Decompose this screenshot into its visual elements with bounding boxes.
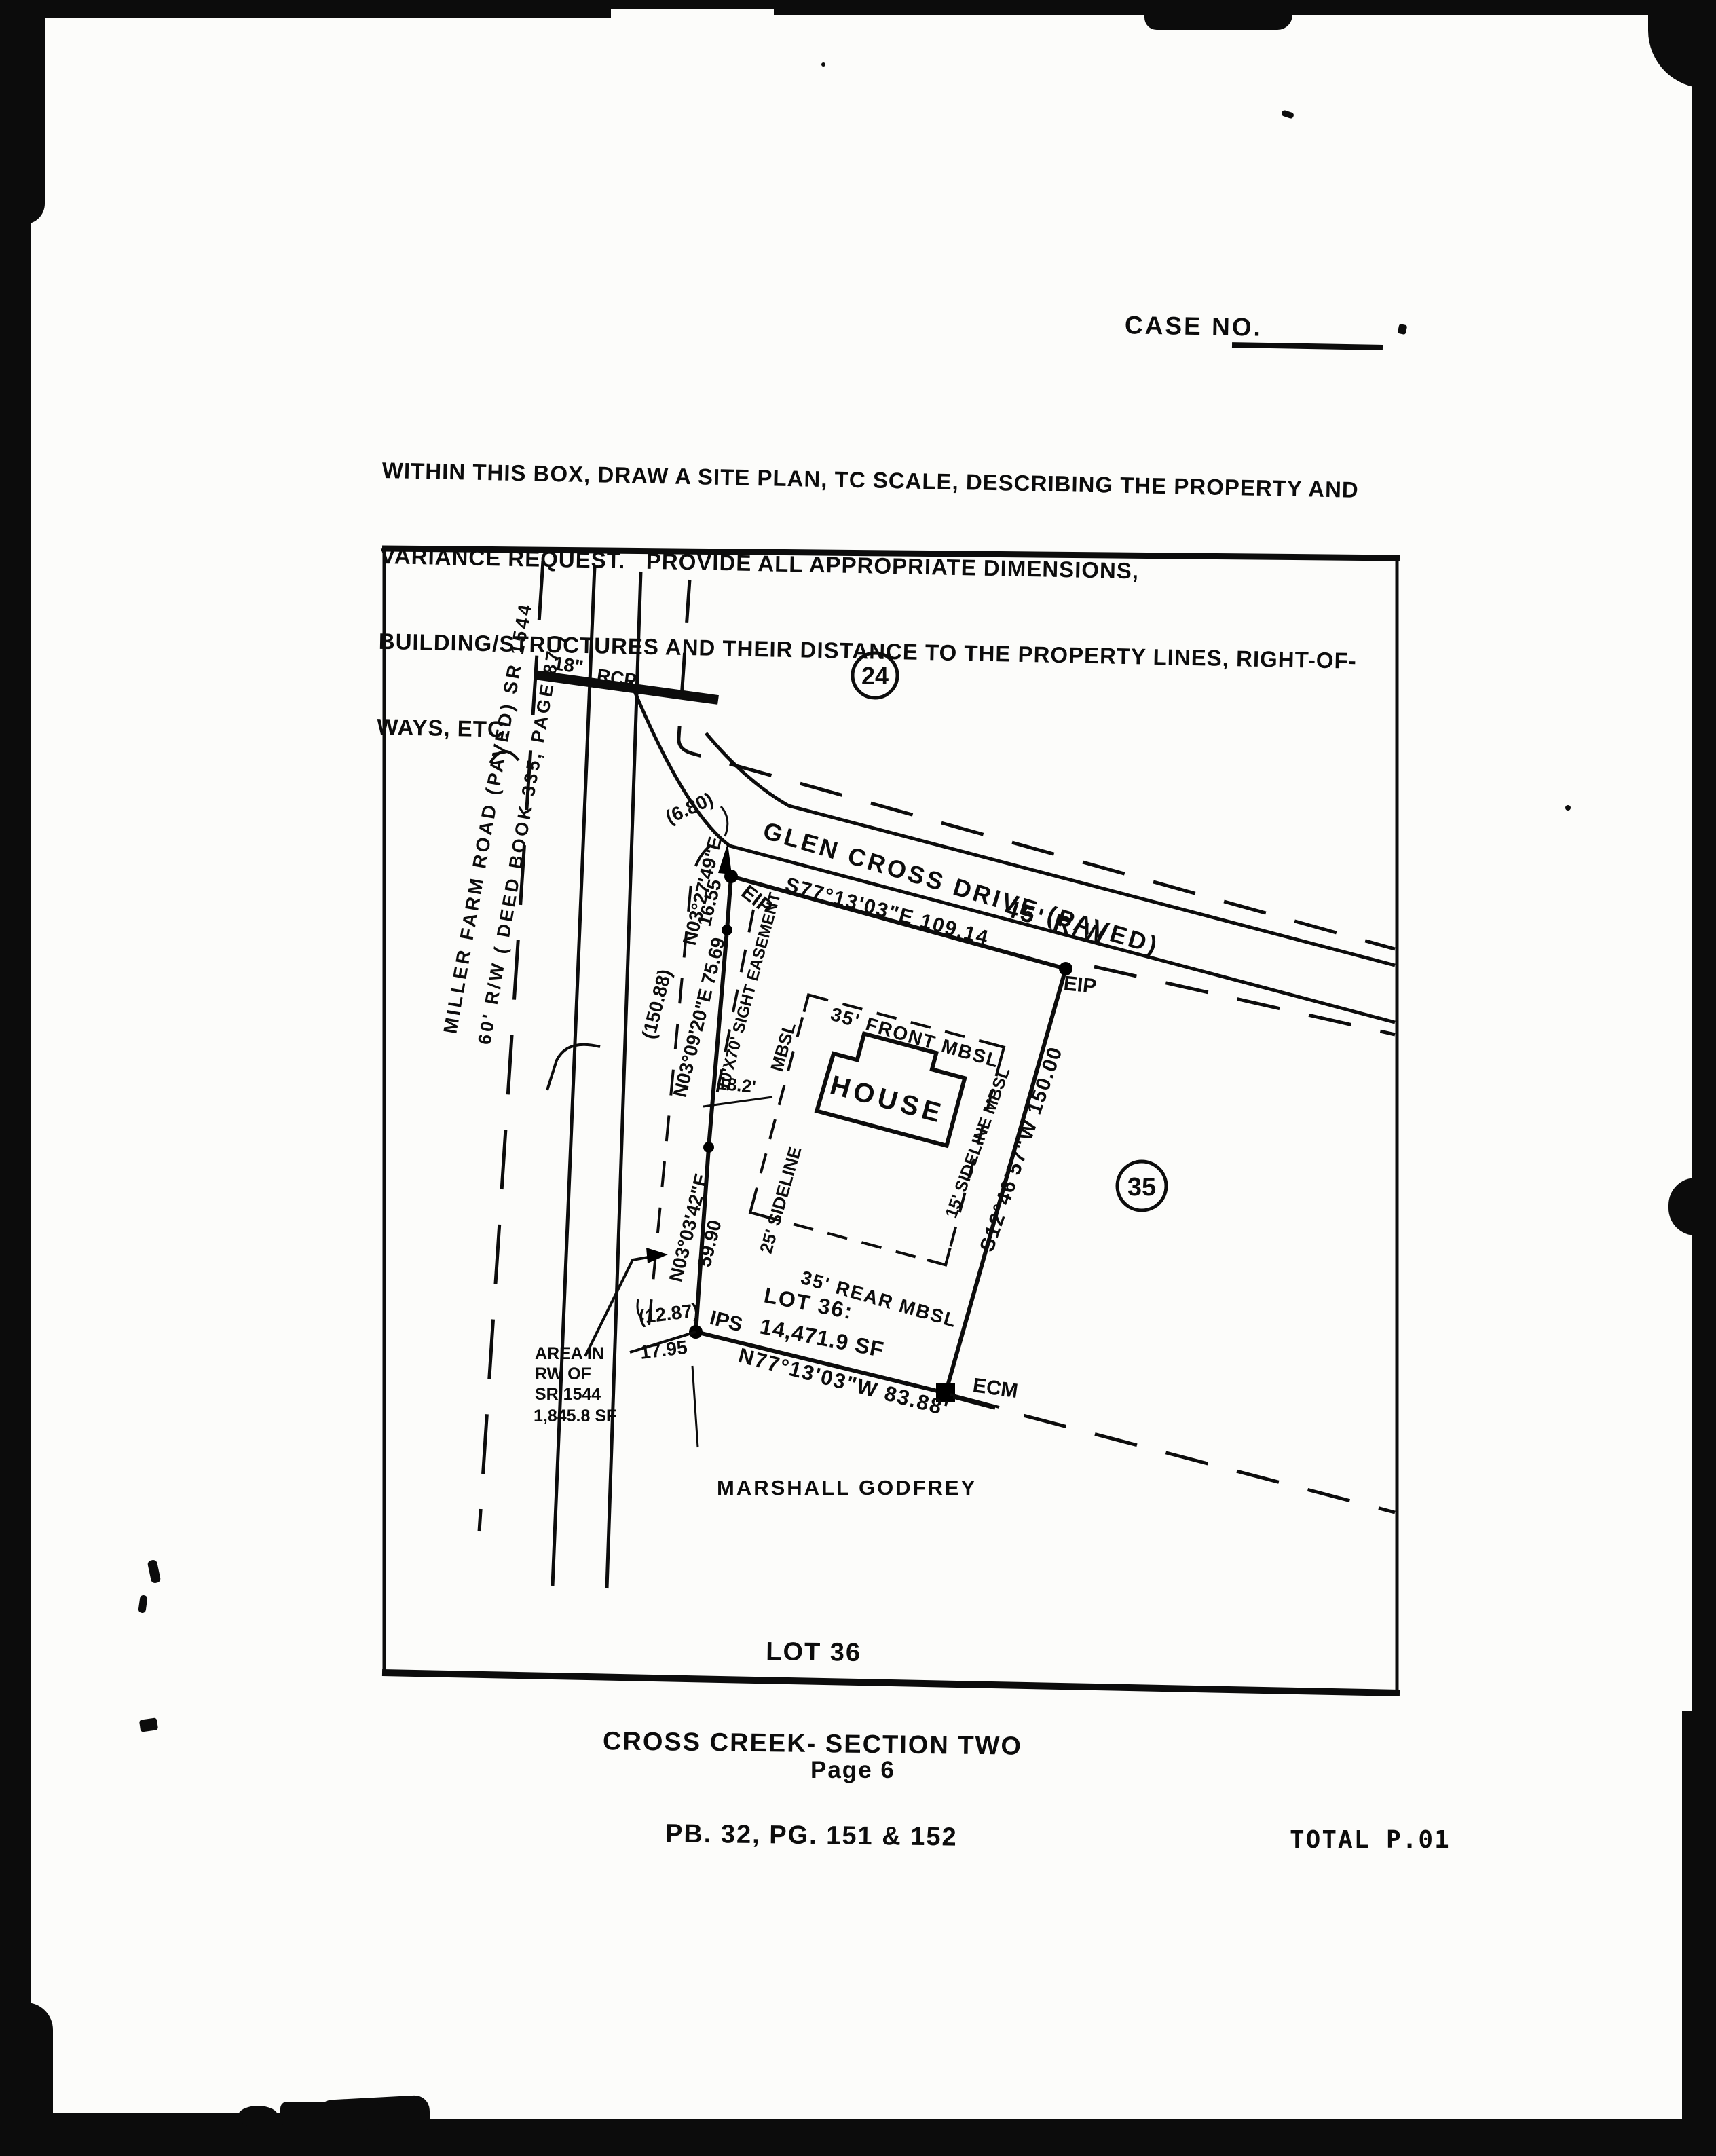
rear-line-extension-dashed	[953, 1397, 1395, 1512]
left-mbsl-label: MBSL	[766, 1020, 800, 1073]
plan-title-block: LOT 36 CROSS CREEK- SECTION TWO PB. 32, …	[383, 1571, 1242, 1917]
scan-artifact-left-bar-top	[0, 0, 45, 224]
west-line-point-marker-upper	[722, 925, 732, 935]
adjacent-owner-label: MARSHALL GODFREY	[717, 1476, 977, 1500]
scan-artifact-top-bar-left	[0, 0, 611, 18]
tie-upper-label: (12.87)	[637, 1299, 700, 1328]
miller-farm-east-pavement-edge	[607, 572, 641, 1588]
page-number: Page 6	[810, 1757, 895, 1784]
scan-artifact-bottom-blob1	[238, 2106, 278, 2127]
rw-total-label: (150.88)	[638, 967, 675, 1041]
ips-label: IPS	[707, 1307, 745, 1337]
scan-speck-5	[139, 1717, 158, 1732]
plan-title-line1: LOT 36	[386, 1632, 1241, 1673]
fax-footer: TOTAL P.01	[1290, 1826, 1451, 1854]
rw-area-line2: RW OF	[535, 1364, 591, 1383]
scan-artifact-left-bar	[0, 0, 31, 2156]
corner-curve-leader	[721, 806, 728, 836]
front-setback-label: 35' FRONT MBSL	[828, 1003, 1002, 1072]
lot-35-bubble: 35	[1117, 1161, 1166, 1210]
ecm-label: ECM	[971, 1374, 1020, 1402]
scan-artifact-bottom-blob2	[280, 2102, 381, 2126]
corner-curve-label: (6.80)	[663, 788, 716, 828]
west-line-point-marker-lower	[703, 1142, 714, 1153]
eip-ne-label: EIP	[1062, 972, 1098, 998]
plan-border-top	[382, 549, 1400, 558]
glen-cross-south-rw-continuation	[1094, 967, 1395, 1035]
east-bearing-label: S12°46'57"W 150.00	[975, 1043, 1067, 1254]
lot-35-number: 35	[1127, 1173, 1156, 1202]
rw-area-note: AREA IN RW OF SR 1544 1,845.8 SF	[534, 1248, 668, 1426]
glen-cross-drive	[630, 580, 1395, 1035]
scan-artifact-right-bar-lower	[1682, 1711, 1716, 2156]
rw-area-line3: SR 1544	[535, 1385, 601, 1404]
miller-farm-west-pavement-edge	[553, 566, 595, 1586]
scan-speck-7	[821, 62, 825, 67]
scan-artifact-top-bar-mid	[597, 0, 787, 9]
lot-24-number: 24	[861, 662, 889, 690]
lot-24-bubble: 24	[853, 653, 897, 698]
scan-speck-6	[1565, 805, 1571, 811]
rw-area-arrowhead	[646, 1248, 668, 1263]
plan-title-line3: PB. 32, PG. 151 & 152	[384, 1815, 1239, 1856]
tie-lower-label: 17.95	[639, 1337, 688, 1363]
setback-corner-tick-se	[927, 1243, 950, 1265]
house-offset-label: 18.2'	[716, 1073, 757, 1097]
scan-artifact-right-curl	[1668, 1178, 1716, 1235]
rw-area-line1: AREA IN	[535, 1344, 604, 1363]
scan-artifact-top-blob	[1144, 0, 1292, 30]
below-ips-line	[692, 1366, 698, 1447]
scanned-variance-form-page: CASE NO. WITHIN THIS BOX, DRAW A SITE PL…	[0, 0, 1716, 2156]
setback-corner-tick-nw	[804, 995, 827, 1017]
rw-area-line4: 1,845.8 SF	[534, 1407, 616, 1426]
south-bearing-label: N77°13'03"W 83.88'	[736, 1343, 952, 1421]
